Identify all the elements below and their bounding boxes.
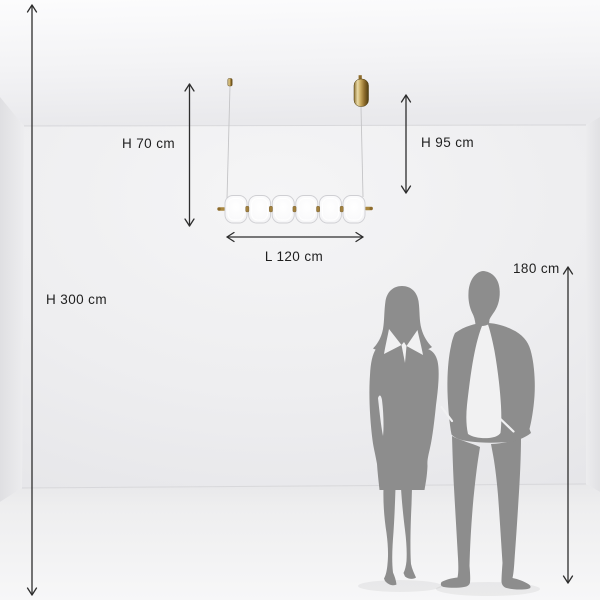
glass-shade bbox=[249, 196, 271, 224]
left-wall bbox=[0, 97, 24, 502]
ceiling bbox=[0, 0, 600, 126]
glass-shade bbox=[296, 196, 318, 224]
lamp-length-label: L 120 cm bbox=[265, 249, 323, 265]
end-knob-left bbox=[217, 207, 220, 210]
glass-shade bbox=[319, 196, 341, 224]
drop-left-label: H 70 cm bbox=[122, 136, 175, 152]
floor-shadow bbox=[358, 580, 442, 592]
canopy bbox=[354, 79, 369, 107]
end-knob-right bbox=[370, 207, 373, 210]
glass-shade bbox=[225, 196, 247, 224]
room-height-label: H 300 cm bbox=[46, 292, 107, 308]
dimension-diagram: H 300 cm H 70 cm H 95 cm L 120 cm 180 cm bbox=[0, 0, 600, 600]
glass-shade bbox=[272, 196, 294, 224]
drop-right-label: H 95 cm bbox=[421, 135, 474, 151]
ceiling-pin bbox=[228, 79, 232, 87]
right-wall bbox=[586, 117, 600, 492]
person-height-label: 180 cm bbox=[513, 261, 560, 277]
glass-shade bbox=[343, 196, 365, 224]
